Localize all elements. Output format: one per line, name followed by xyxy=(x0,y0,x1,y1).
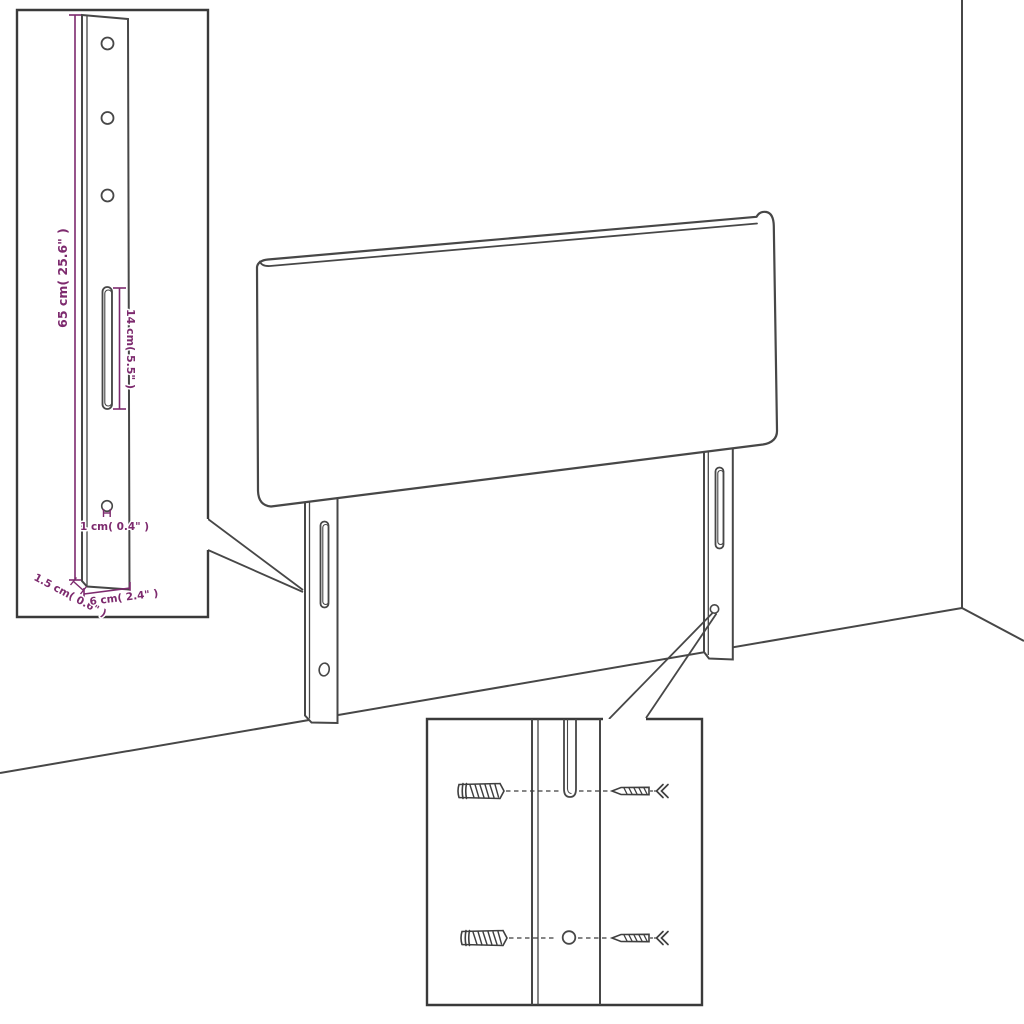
diagram-page: 65 cm( 25.6" ) 14 cm( 5.5" ) 1 cm( 0.4" … xyxy=(0,0,1024,1024)
callout-left-line-top xyxy=(208,519,303,590)
dim-slot-label: 14 cm( 5.5" ) xyxy=(124,309,137,389)
headboard-panel xyxy=(257,212,777,507)
mounting-detail-inset xyxy=(427,719,702,1005)
bracket-body xyxy=(82,15,130,590)
bracket-drawing xyxy=(82,15,130,590)
headboard-outline xyxy=(257,212,777,507)
diagram-canvas: 65 cm( 25.6" ) 14 cm( 5.5" ) 1 cm( 0.4" … xyxy=(0,0,1024,1024)
callout-right-line-right xyxy=(646,614,717,719)
left-leg xyxy=(305,492,338,724)
callout-left xyxy=(208,519,303,592)
dim-height-label: 65 cm( 25.6" ) xyxy=(55,228,70,328)
bracket-detail-inset: 65 cm( 25.6" ) 14 cm( 5.5" ) 1 cm( 0.4" … xyxy=(17,10,208,620)
callout-left-line-bottom xyxy=(208,550,303,592)
dim-hole-label: 1 cm( 0.4" ) xyxy=(80,521,149,533)
floor-line-right xyxy=(962,608,1024,641)
